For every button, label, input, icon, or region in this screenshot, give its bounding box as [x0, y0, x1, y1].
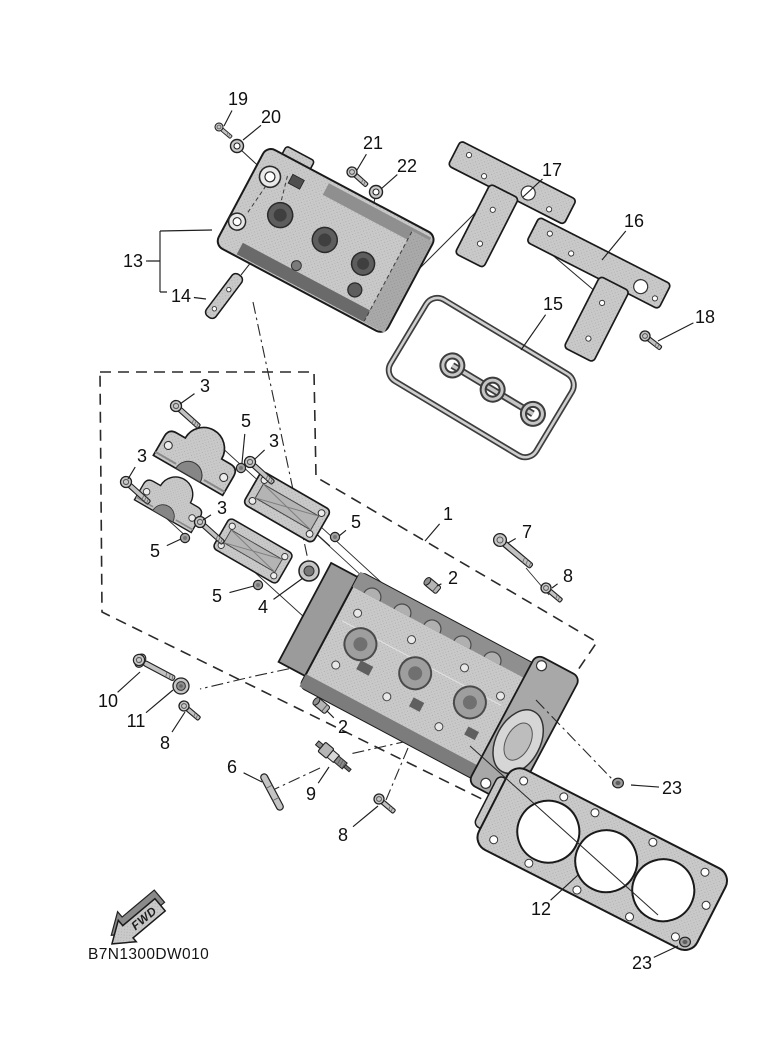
callout-5: 5 — [212, 586, 222, 606]
part-8-bolt — [539, 581, 565, 605]
part-9-spark-plug — [313, 738, 354, 775]
part-4-plug — [299, 561, 319, 581]
callout-3: 3 — [217, 498, 227, 518]
callout-16: 16 — [624, 211, 644, 231]
callout-1: 1 — [443, 504, 453, 524]
callout-3: 3 — [269, 431, 279, 451]
leader-line-3 — [128, 467, 135, 479]
leader-line-3 — [255, 450, 265, 459]
part-16-plate — [492, 217, 672, 378]
callout-23: 23 — [662, 778, 682, 798]
leader-line-23 — [654, 946, 678, 957]
part-23-dowel — [613, 778, 624, 788]
leader-line-5 — [167, 539, 181, 546]
callout-7: 7 — [522, 522, 532, 542]
callout-5: 5 — [241, 411, 251, 431]
callout-4: 4 — [258, 597, 268, 617]
leader-line-18 — [658, 323, 693, 341]
callout-9: 9 — [306, 784, 316, 804]
callout-5: 5 — [351, 512, 361, 532]
leader-line-20 — [243, 125, 261, 140]
part-15-head-cover-gasket — [384, 293, 579, 462]
leader-line-19 — [224, 111, 232, 127]
callout-10: 10 — [98, 691, 118, 711]
callout-2: 2 — [338, 717, 348, 737]
exploded-view-diagram: FWD 192021221314171615183533355541728210… — [0, 0, 770, 1064]
callout-2: 2 — [448, 568, 458, 588]
callout-22: 22 — [397, 156, 417, 176]
leader-line-23 — [631, 785, 659, 787]
leader-line-8 — [353, 806, 378, 827]
callout-23: 23 — [632, 953, 652, 973]
part-23-dowel — [680, 937, 691, 947]
parts-diagram-page: FWD 192021221314171615183533355541728210… — [0, 0, 770, 1064]
part-14-damper — [204, 272, 245, 321]
leader-line-15 — [521, 315, 546, 350]
part-3-bolt — [168, 398, 202, 431]
leader-line-6 — [244, 773, 262, 782]
leader-line-22 — [381, 175, 397, 189]
leader-line-10 — [118, 672, 140, 692]
callout-3: 3 — [137, 446, 147, 466]
part-5-dowel-pin — [236, 463, 245, 472]
leader-line-3 — [180, 394, 195, 404]
callout-20: 20 — [261, 107, 281, 127]
leader-line-5 — [242, 434, 245, 463]
callout-6: 6 — [227, 757, 237, 777]
leader-line-14 — [194, 298, 206, 300]
part-camshaft-cap — [212, 517, 293, 584]
part-20-washer — [231, 140, 244, 153]
part-6-stud — [260, 773, 285, 812]
part-5-dowel-pin — [330, 532, 339, 541]
callout-11: 11 — [127, 711, 146, 731]
callout-5: 5 — [150, 541, 160, 561]
leader-line-8 — [172, 712, 185, 732]
callout-19: 19 — [228, 89, 248, 109]
diagram-part-code: B7N1300DW010 — [88, 946, 209, 964]
leader-line-21 — [357, 154, 366, 170]
leader-line-3 — [203, 515, 211, 520]
callout-15: 15 — [543, 294, 563, 314]
callout-8: 8 — [563, 566, 573, 586]
leader-line-1 — [425, 524, 440, 541]
leader-line-9 — [318, 767, 329, 783]
part-11-nut — [173, 678, 189, 694]
part-19-bolt — [213, 121, 233, 140]
leader-line-5 — [230, 586, 255, 593]
callout-13: 13 — [123, 251, 143, 271]
callout-21: 21 — [363, 133, 383, 153]
callout-8: 8 — [338, 825, 348, 845]
part-5-dowel-pin — [180, 533, 189, 542]
leader-line-2 — [327, 711, 334, 718]
part-10-bolt — [131, 651, 178, 685]
callout-18: 18 — [695, 307, 715, 327]
callout-17: 17 — [542, 160, 562, 180]
part-12-head-gasket — [466, 760, 732, 955]
callout-13-bracket — [148, 230, 212, 292]
callout-14: 14 — [171, 286, 191, 306]
part-8-bolt — [372, 792, 398, 816]
callout-12: 12 — [531, 899, 551, 919]
part-22-washer — [370, 186, 383, 199]
callout-3: 3 — [200, 376, 210, 396]
leader-line-7 — [508, 539, 516, 544]
callout-8: 8 — [160, 733, 170, 753]
fwd-direction-arrow: FWD — [98, 885, 172, 955]
part-5-dowel-pin — [253, 580, 262, 589]
leader-line-8 — [552, 584, 558, 588]
part-1-cylinder-head — [270, 549, 580, 807]
leader-line-5 — [339, 530, 346, 536]
leader-line-11 — [146, 690, 173, 713]
